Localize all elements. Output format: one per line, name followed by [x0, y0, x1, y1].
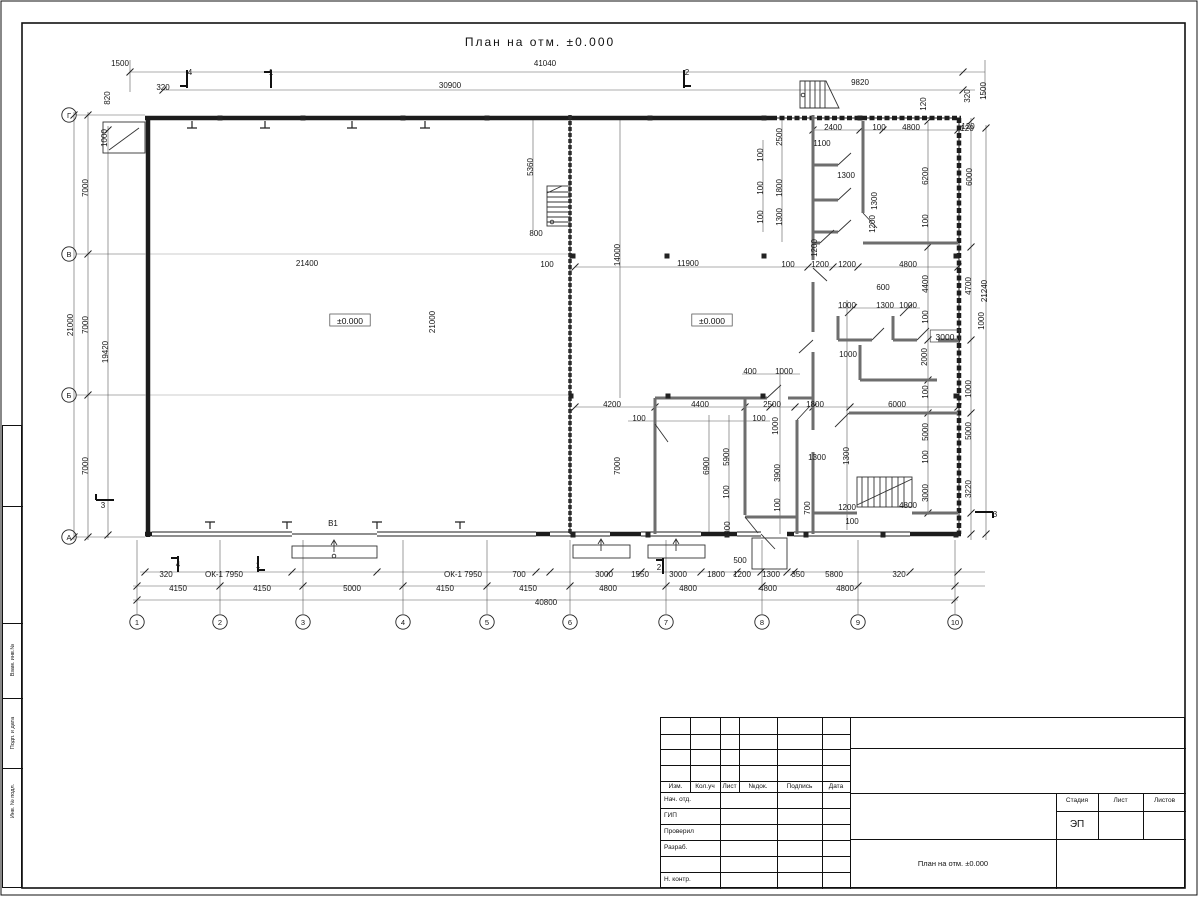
column-marker: [954, 533, 959, 538]
dim-label: 1100: [813, 139, 831, 148]
grid-bubble-label: Г: [67, 111, 71, 120]
dim-label: 4: [176, 560, 181, 569]
dim-label: 7000: [613, 457, 622, 475]
dim-label: 30900: [439, 81, 462, 90]
dim-label: 1200: [733, 570, 751, 579]
dim-label: 6900: [702, 457, 711, 475]
column-marker: [954, 394, 959, 399]
grid-bubble-label: 8: [760, 618, 764, 627]
dim-label: 2: [657, 563, 662, 572]
dim-label: 7000: [81, 179, 90, 197]
column-marker: [571, 254, 576, 259]
level-mark: ±0.000: [699, 316, 725, 326]
dim-label: 4400: [921, 275, 930, 293]
dim-label: 21000: [66, 313, 75, 336]
strip-inv-podl: Инв. № подл.: [10, 773, 16, 829]
dim-label: 1200: [868, 215, 877, 233]
dim-label: 4800: [902, 123, 920, 132]
dim-label: 2: [685, 68, 690, 77]
stamp-stage-header: Стадия: [1056, 798, 1098, 805]
dim-label: 19420: [101, 340, 110, 363]
stamp-row-proveril: Проверил: [664, 829, 694, 836]
dim-label: 100: [921, 450, 930, 464]
stamp-col-izm: Изм.: [661, 784, 690, 791]
dim-label: 4800: [899, 260, 917, 269]
dim-label: 1: [256, 561, 261, 570]
dim-label: 2000: [920, 348, 929, 366]
stamp-sheets-header: Листов: [1143, 798, 1186, 805]
dim-label: 1200: [811, 260, 829, 269]
column-marker: [648, 116, 653, 121]
level-mark: 3000: [936, 332, 955, 342]
dim-label: 3: [993, 510, 998, 519]
grid-bubbles: 12345678910ГВБА: [62, 108, 962, 629]
grid-bubble-label: 7: [664, 618, 668, 627]
dim-label: 4800: [836, 584, 854, 593]
grid-bubble-label: А: [66, 533, 71, 542]
dim-label: 1550: [631, 570, 649, 579]
section-marks: [96, 70, 993, 574]
stamp-col-ndok: №док.: [739, 784, 777, 791]
dim-label: 1200: [838, 503, 856, 512]
dim-label: 100: [752, 414, 766, 423]
dim-label: 3000: [595, 570, 613, 579]
grid-bubble-label: 3: [301, 618, 305, 627]
dim-label: 3: [101, 501, 106, 510]
dim-label: 100: [756, 148, 765, 162]
grid-bubble-label: 9: [856, 618, 860, 627]
grid-bubble-label: 6: [568, 618, 572, 627]
dim-label: 100: [540, 260, 554, 269]
dim-label: 2500: [763, 400, 781, 409]
column-marker: [954, 254, 959, 259]
stamp-col-list: Лист: [720, 784, 739, 791]
dimension-labels: 1500410403203090098208201000120320150041…: [66, 59, 998, 607]
dim-label: 4400: [691, 400, 709, 409]
stamp-stage-value: ЭП: [1056, 820, 1098, 830]
dim-label: 1300: [762, 570, 780, 579]
column-marker: [762, 116, 767, 121]
dim-label: 6000: [888, 400, 906, 409]
dim-label: 120: [919, 97, 928, 111]
dim-label: 1000: [100, 129, 109, 147]
dim-label: 5000: [921, 423, 930, 441]
dim-label: 1300: [870, 192, 879, 210]
dim-label: 1300: [775, 208, 784, 226]
title-block: Изм. Кол.уч Лист №док. Подпись Дата Нач.…: [660, 717, 1185, 888]
dim-label: 21400: [296, 259, 319, 268]
dim-label: 320: [892, 570, 906, 579]
dim-label: 4800: [599, 584, 617, 593]
dim-label: 350: [791, 570, 805, 579]
dim-label: 100: [722, 485, 731, 499]
dim-label: 100: [756, 181, 765, 195]
dim-label: 6200: [921, 167, 930, 185]
dim-label: 11900: [677, 259, 699, 268]
stamp-row-razrab: Разраб.: [664, 845, 687, 852]
dim-label: 2400: [824, 123, 842, 132]
stamp-row-gip: ГИП: [664, 813, 677, 820]
dim-label: 1500: [111, 59, 129, 68]
stamp-col-koluch: Кол.уч: [690, 784, 720, 791]
drawing-title: План на отм. ±0.000: [465, 35, 615, 49]
column-marker: [761, 394, 766, 399]
dim-label: 6000: [965, 168, 974, 186]
dim-label: 14000: [613, 243, 622, 266]
dim-label: 21000: [428, 310, 437, 333]
dim-label: ОК-1 7950: [444, 570, 483, 579]
dim-label: 1: [269, 68, 274, 77]
gate-bay: [292, 546, 377, 558]
dim-label: 400: [743, 367, 757, 376]
dim-label: 4150: [436, 584, 454, 593]
dim-label: 1000: [977, 312, 986, 330]
dim-label: 4150: [169, 584, 187, 593]
dim-label: 4150: [519, 584, 537, 593]
dim-label: 100: [781, 260, 795, 269]
dim-label: 320: [159, 570, 173, 579]
column-marker: [301, 116, 306, 121]
level-mark: ±0.000: [337, 316, 363, 326]
strip-podp-data: Подп. и дата: [10, 705, 16, 761]
dim-label: 1000: [771, 417, 780, 435]
dim-label: ОК-1 7950: [205, 570, 244, 579]
column-marker: [401, 116, 406, 121]
dim-label: 100: [773, 498, 782, 512]
dim-label: 1000: [838, 301, 856, 310]
dim-label: 4: [188, 68, 193, 77]
dim-label: 320: [156, 83, 170, 92]
drawing-sheet: { "title": "План на отм. ±0.000", "grid_…: [0, 0, 1200, 900]
door-leaves: [655, 153, 929, 549]
dim-label: 1300: [876, 301, 894, 310]
dim-label: 700: [512, 570, 526, 579]
dim-label: 800: [529, 229, 543, 238]
dim-label: 1300: [837, 171, 855, 180]
column-beams: [187, 121, 465, 529]
dim-label: 1200: [838, 260, 856, 269]
level-marks: ±0.000±0.0003000: [330, 314, 960, 342]
dim-label: 3900: [773, 464, 782, 482]
dim-label: 1200: [810, 239, 819, 257]
dim-label: 1800: [775, 179, 784, 197]
dim-label: 4800: [679, 584, 697, 593]
grid-bubble-label: 10: [951, 618, 959, 627]
stairs-and-bays: [103, 81, 912, 569]
column-marker: [762, 254, 767, 259]
dim-label: 100: [756, 210, 765, 224]
dim-label: 4800: [899, 501, 917, 510]
grid-bubble-label: 2: [218, 618, 222, 627]
dim-label: 7000: [81, 457, 90, 475]
dim-label: 3220: [964, 480, 973, 498]
dim-label: 120: [960, 124, 974, 133]
stamp-doc-title: План на отм. ±0.000: [850, 860, 1056, 868]
dim-label: 7000: [81, 316, 90, 334]
dim-label: 100: [632, 414, 646, 423]
dim-label: 1500: [979, 82, 988, 100]
dim-label: 5360: [526, 158, 535, 176]
grid-bubble-label: Б: [67, 391, 72, 400]
dim-label: 4150: [253, 584, 271, 593]
dim-label: 41040: [534, 59, 557, 68]
column-marker: [858, 116, 863, 121]
grid-bubble-label: В: [66, 250, 71, 259]
dim-label: 4200: [603, 400, 621, 409]
stamp-row-nkontr: Н. контр.: [664, 877, 691, 884]
entrance-ramp: [800, 81, 839, 108]
column-marker: [571, 533, 576, 538]
grid-bubble-label: 4: [401, 618, 405, 627]
dim-label: 3000: [921, 484, 930, 502]
dim-label: 1000: [839, 350, 857, 359]
dim-label: 2500: [775, 128, 784, 146]
dim-label: 1300: [808, 453, 826, 462]
column-marker: [569, 394, 574, 399]
dim-label: 100: [872, 123, 886, 132]
dim-label: 1300: [842, 447, 851, 465]
stamp-row-nach-otd: Нач. отд.: [664, 797, 691, 804]
dim-label: 1800: [707, 570, 725, 579]
stamp-col-podpis: Подпись: [777, 784, 822, 791]
column-marker: [218, 116, 223, 121]
strip-vzam-inv: Взам. инв.№: [10, 632, 16, 688]
dim-label: В1: [328, 519, 338, 528]
column-marker: [485, 116, 490, 121]
stamp-sheet-header: Лист: [1098, 798, 1143, 805]
stamp-col-data: Дата: [822, 784, 850, 791]
dim-label: 320: [963, 89, 972, 103]
dim-label: 100: [921, 385, 930, 399]
dim-label: 100: [921, 310, 930, 324]
dim-label: 600: [876, 283, 890, 292]
dim-label: 9820: [851, 78, 869, 87]
dim-label: 5900: [722, 448, 731, 466]
column-marker: [666, 394, 671, 399]
attestation-strip: Взам. инв.№ Подп. и дата Инв. № подл.: [2, 425, 22, 888]
dim-label: 21240: [980, 279, 989, 302]
column-marker: [881, 533, 886, 538]
dim-label: 900: [723, 521, 732, 535]
dim-label: 40800: [535, 598, 558, 607]
dim-label: 100: [921, 214, 930, 228]
dim-label: 500: [733, 556, 747, 565]
dim-label: 5000: [343, 584, 361, 593]
dim-label: 4800: [759, 584, 777, 593]
dim-label: 100: [845, 517, 859, 526]
column-marker: [804, 533, 809, 538]
dim-label: 5800: [825, 570, 843, 579]
dim-label: 4700: [964, 277, 973, 295]
dim-label: 5000: [964, 422, 973, 440]
column-marker: [646, 533, 651, 538]
dim-label: 1000: [964, 380, 973, 398]
dim-label: 1800: [806, 400, 824, 409]
dim-label: 1000: [775, 367, 793, 376]
grid-bubble-label: 5: [485, 618, 489, 627]
dim-label: 3000: [669, 570, 687, 579]
dim-label: 820: [103, 91, 112, 105]
dim-label: 700: [803, 501, 812, 515]
dim-label: 1000: [899, 301, 917, 310]
column-marker: [665, 254, 670, 259]
corner-niche: [103, 122, 145, 153]
grid-bubble-label: 1: [135, 618, 139, 627]
